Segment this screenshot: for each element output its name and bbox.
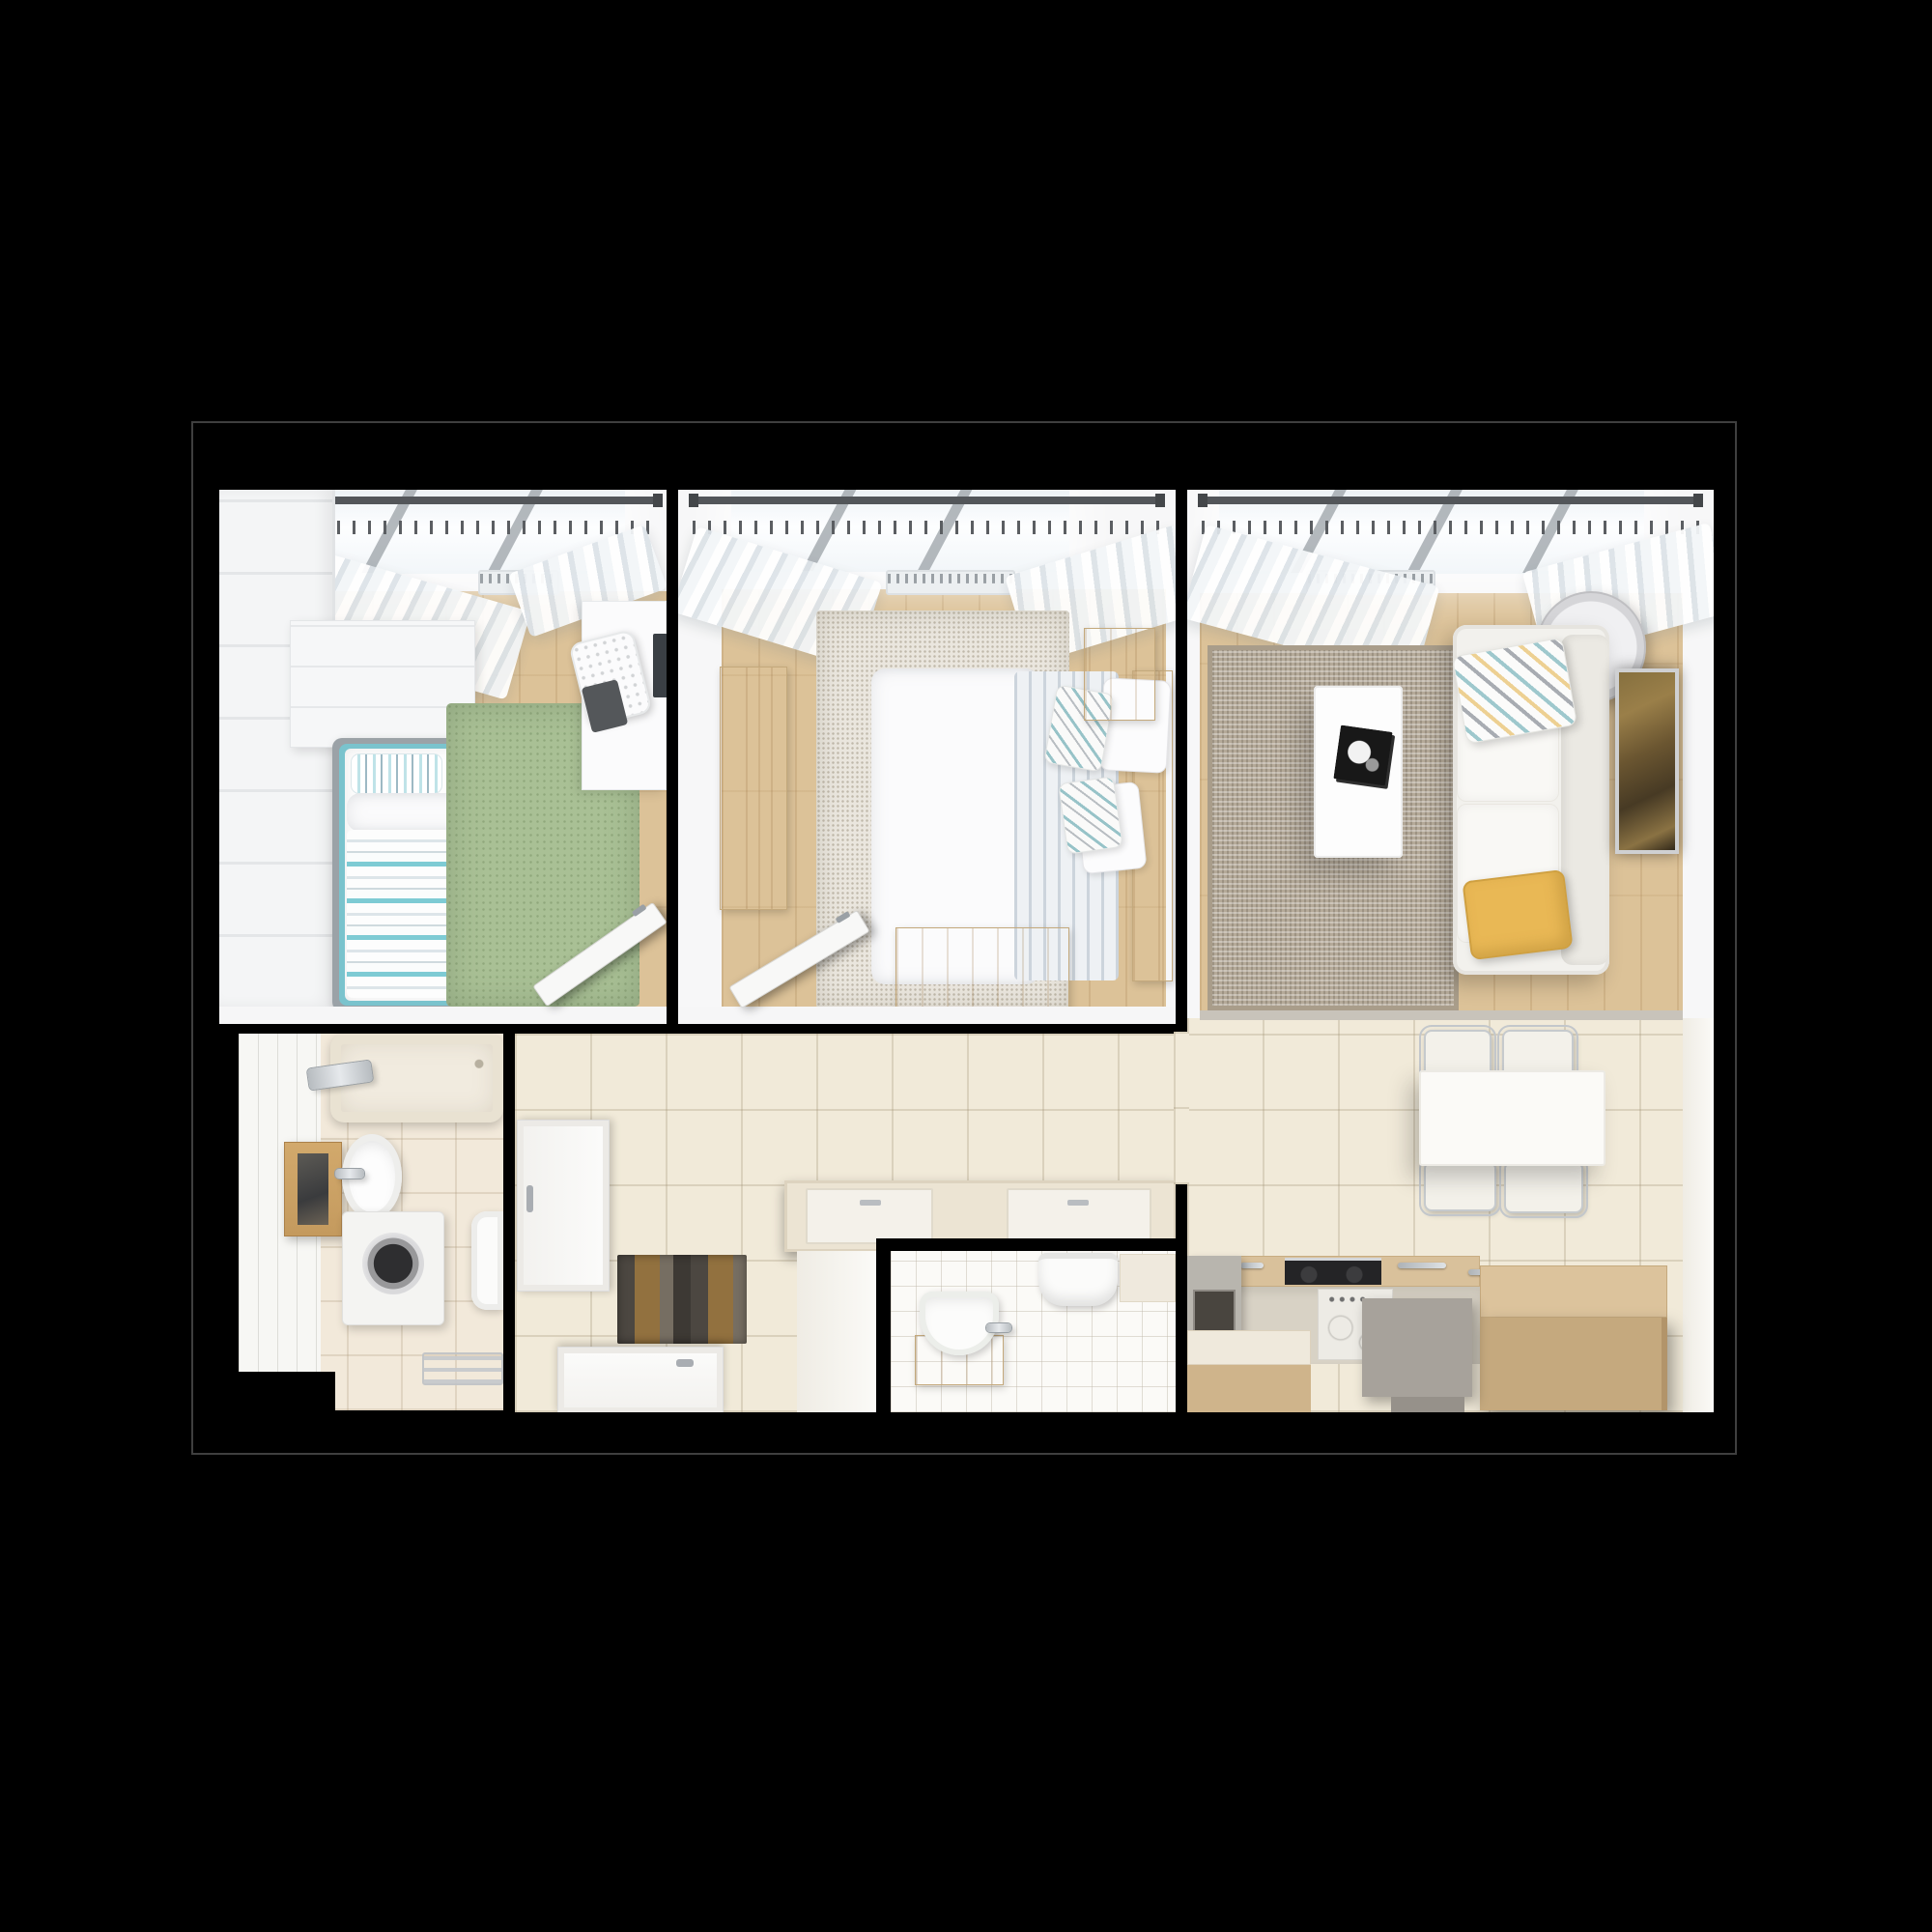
low-counter-front	[1187, 1365, 1311, 1412]
canvas	[0, 0, 1932, 1932]
kitchen-island-top	[1480, 1265, 1667, 1318]
gray-unit-foot	[1391, 1397, 1464, 1412]
closet-door	[806, 1188, 933, 1244]
palm-print-pillow	[1058, 776, 1123, 854]
wc-wall	[876, 1238, 1176, 1251]
wc-wall	[876, 1251, 891, 1412]
washer-door	[362, 1233, 424, 1294]
cooktop	[1285, 1258, 1381, 1285]
striped-pillow	[351, 753, 442, 794]
drawer-handle	[1398, 1263, 1446, 1268]
open-passage	[1174, 1032, 1189, 1184]
closet-door	[1007, 1188, 1151, 1244]
floor-threshold	[1200, 1010, 1683, 1020]
magazine	[1333, 725, 1392, 786]
curtain-rod-hooks	[1202, 521, 1699, 534]
bathroom-door	[517, 1120, 610, 1292]
toilet	[471, 1211, 503, 1310]
chrome-floor-rack	[422, 1352, 503, 1385]
dining-chair	[1504, 1161, 1583, 1213]
wc-wall-face	[797, 1251, 876, 1412]
entrance-door	[557, 1347, 724, 1412]
wall-sill	[678, 1007, 1176, 1024]
room-bedroom-1	[219, 490, 667, 1024]
sink-faucet	[335, 1169, 364, 1179]
curtain-rod-hooks	[693, 521, 1161, 534]
floor-plan	[191, 421, 1737, 1455]
nightstand	[1084, 628, 1155, 721]
doormat	[617, 1255, 747, 1344]
yellow-pillow	[1462, 869, 1573, 960]
curtain-rod	[693, 497, 1161, 504]
dining-chair	[1424, 1161, 1496, 1211]
wall-sill	[219, 1007, 667, 1024]
dining-table	[1419, 1070, 1605, 1166]
drawer-handle	[1240, 1263, 1264, 1268]
kitchen-island-front	[1480, 1318, 1667, 1410]
low-counter-top	[1187, 1330, 1311, 1365]
wc-toilet	[1038, 1253, 1118, 1306]
tall-wardrobe-wood	[720, 667, 787, 910]
room-hallway-wc	[515, 1034, 1176, 1412]
room-bedroom-2	[678, 490, 1176, 1024]
curtain-rod	[1202, 497, 1699, 504]
wardrobe-white	[219, 490, 335, 1007]
mirror-glass	[298, 1153, 328, 1225]
monitor	[653, 634, 667, 697]
wc-faucet	[986, 1323, 1011, 1332]
radiator	[886, 570, 1015, 595]
built-in-appliance	[1193, 1290, 1236, 1334]
room-living-kitchen	[1187, 490, 1714, 1412]
kitchen-wall-face	[1683, 1018, 1714, 1412]
wall-notch	[239, 1372, 335, 1410]
room-bathroom	[239, 1034, 503, 1410]
wall-art	[1615, 668, 1679, 854]
wc-shelf	[1120, 1254, 1176, 1302]
gray-unit	[1362, 1298, 1472, 1397]
